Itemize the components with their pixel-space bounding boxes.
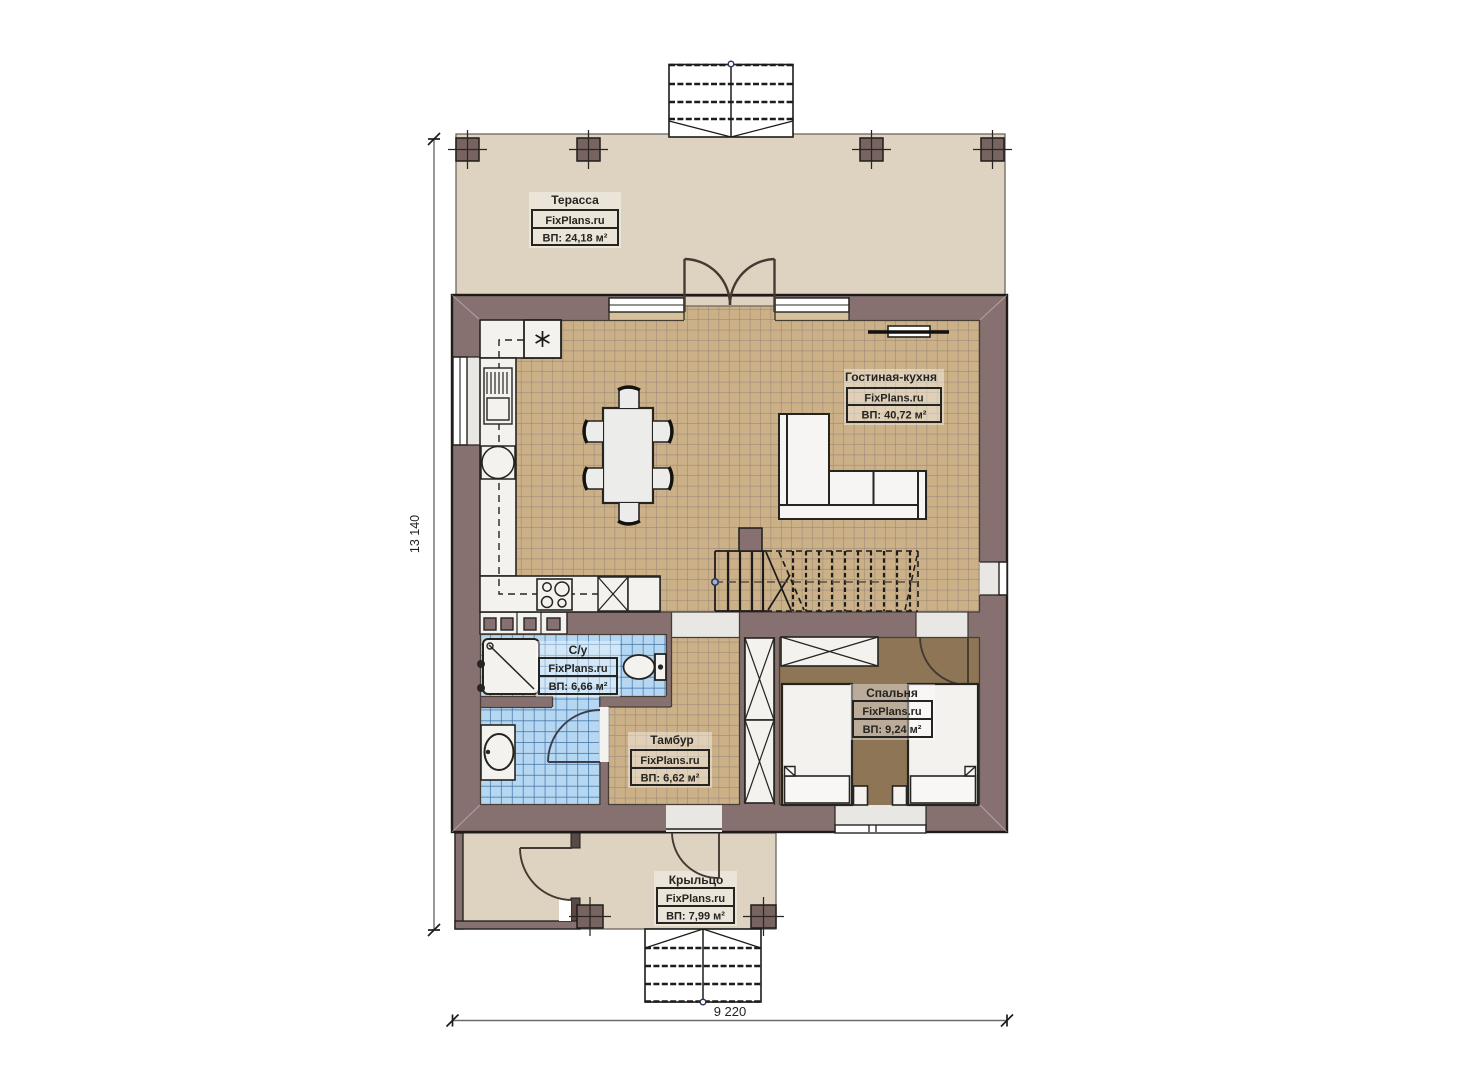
svg-text:Тамбур: Тамбур [650,733,694,747]
svg-text:ВП: 7,99 м²: ВП: 7,99 м² [666,911,725,923]
svg-text:ВП: 40,72 м²: ВП: 40,72 м² [862,410,927,422]
svg-text:Гостиная-кухня: Гостиная-кухня [845,370,937,384]
svg-text:FixPlans.ru: FixPlans.ru [666,893,725,905]
svg-text:FixPlans.ru: FixPlans.ru [548,663,607,675]
svg-text:С/у: С/у [569,643,588,657]
svg-text:ВП: 6,66 м²: ВП: 6,66 м² [549,681,608,693]
svg-text:ВП: 9,24 м²: ВП: 9,24 м² [863,724,922,736]
svg-text:13 140: 13 140 [408,515,422,553]
svg-text:FixPlans.ru: FixPlans.ru [545,215,604,227]
svg-text:9 220: 9 220 [714,1004,747,1019]
svg-text:ВП: 6,62 м²: ВП: 6,62 м² [641,773,700,785]
svg-text:Спальня: Спальня [866,686,918,700]
svg-text:FixPlans.ru: FixPlans.ru [640,755,699,767]
svg-text:FixPlans.ru: FixPlans.ru [862,706,921,718]
svg-text:FixPlans.ru: FixPlans.ru [864,393,923,405]
svg-text:Терасса: Терасса [551,193,599,207]
svg-text:ВП: 24,18 м²: ВП: 24,18 м² [543,233,608,245]
svg-text:Крыльцо: Крыльцо [669,873,724,887]
